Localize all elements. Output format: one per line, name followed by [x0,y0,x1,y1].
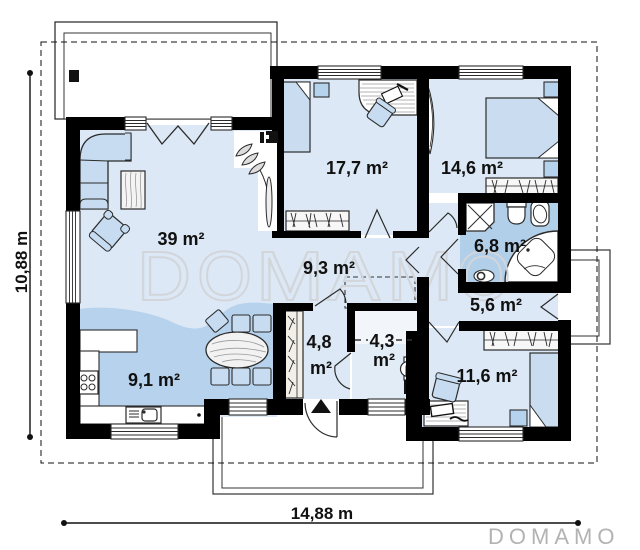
svg-text:4,8: 4,8 [306,332,331,352]
svg-text:DOMAMO: DOMAMO [488,524,619,549]
svg-text:9,3 m²: 9,3 m² [303,258,355,278]
svg-text:17,7 m²: 17,7 m² [326,158,388,178]
svg-text:6,8 m²: 6,8 m² [474,236,526,256]
svg-text:10,88 m: 10,88 m [12,231,31,293]
svg-text:4,3: 4,3 [369,331,394,351]
svg-text:5,6 m²: 5,6 m² [470,295,522,315]
svg-text:11,6 m²: 11,6 m² [456,366,517,386]
svg-text:m²: m² [310,358,332,378]
svg-text:O: O [197,237,252,315]
svg-text:14,88 m: 14,88 m [291,504,353,523]
svg-text:39 m²: 39 m² [157,229,204,249]
svg-text:m²: m² [373,350,395,370]
svg-text:14,6 m²: 14,6 m² [441,158,503,178]
svg-text:9,1 m²: 9,1 m² [128,370,180,390]
